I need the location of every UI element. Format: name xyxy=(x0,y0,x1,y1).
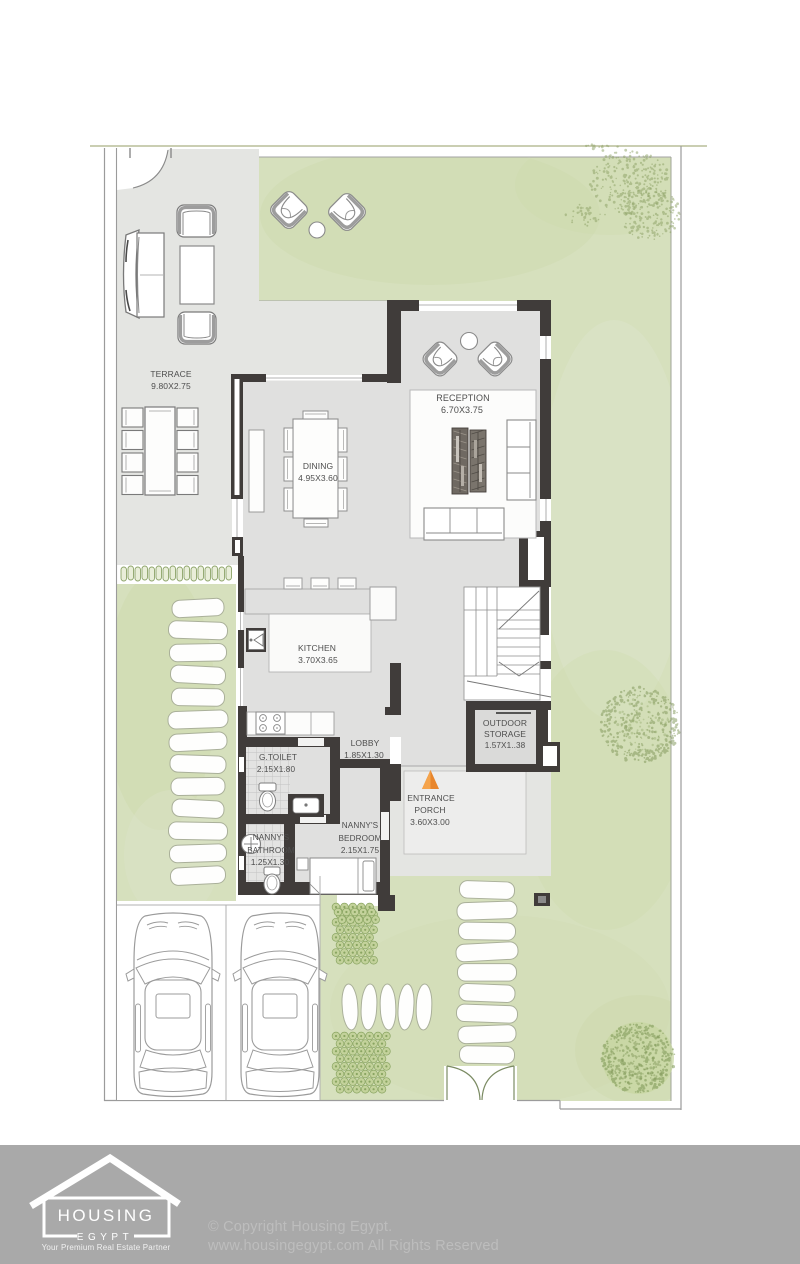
svg-text:www.housingegypt.com All Right: www.housingegypt.com All Rights Reserved xyxy=(207,1238,499,1254)
svg-text:2.15X1.80: 2.15X1.80 xyxy=(257,765,296,774)
svg-text:BATHROOM: BATHROOM xyxy=(247,846,295,855)
svg-text:9.80X2.75: 9.80X2.75 xyxy=(151,381,191,391)
svg-text:3.70X3.65: 3.70X3.65 xyxy=(298,655,338,665)
svg-text:HOUSING: HOUSING xyxy=(58,1206,155,1225)
svg-text:RECEPTION: RECEPTION xyxy=(436,393,489,403)
svg-text:BEDROOM: BEDROOM xyxy=(338,834,381,843)
svg-text:© Copyright Housing Egypt.: © Copyright Housing Egypt. xyxy=(208,1219,392,1235)
svg-text:2.15X1.75: 2.15X1.75 xyxy=(341,846,380,855)
svg-text:EGYPT: EGYPT xyxy=(77,1232,133,1243)
svg-text:NANNY'S: NANNY'S xyxy=(342,821,379,830)
svg-text:STORAGE: STORAGE xyxy=(484,729,526,739)
svg-text:ENTRANCE: ENTRANCE xyxy=(407,793,455,803)
svg-text:PORCH: PORCH xyxy=(414,805,445,815)
svg-text:1.85X1.30: 1.85X1.30 xyxy=(344,750,384,760)
svg-text:LOBBY: LOBBY xyxy=(351,738,380,748)
svg-text:TERRACE: TERRACE xyxy=(150,369,192,379)
svg-text:4.95X3.60: 4.95X3.60 xyxy=(298,473,338,483)
svg-text:3.60X3.00: 3.60X3.00 xyxy=(410,817,450,827)
svg-text:Your Premium Real Estate Partn: Your Premium Real Estate Partner xyxy=(42,1243,171,1252)
svg-text:G.TOILET: G.TOILET xyxy=(259,753,297,762)
svg-text:1.25X1.30: 1.25X1.30 xyxy=(251,858,290,867)
svg-text:6.70X3.75: 6.70X3.75 xyxy=(441,405,483,415)
svg-text:OUTDOOR: OUTDOOR xyxy=(483,718,527,728)
svg-text:1.57X1..38: 1.57X1..38 xyxy=(485,741,526,750)
svg-text:NANNY'S: NANNY'S xyxy=(253,833,290,842)
svg-text:KITCHEN: KITCHEN xyxy=(298,643,336,653)
svg-text:DINING: DINING xyxy=(303,461,333,471)
